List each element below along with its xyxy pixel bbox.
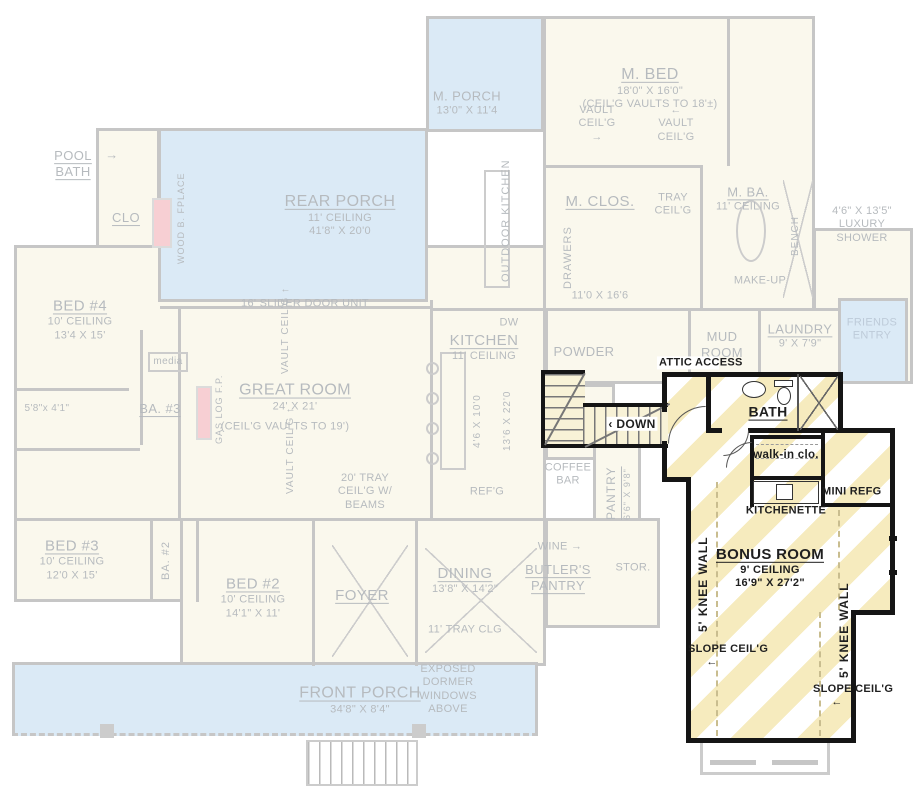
- island-stool: [426, 362, 439, 375]
- wood-fireplace: [152, 198, 172, 248]
- window-tick: [889, 570, 897, 575]
- label-make-up: MAKE-UP: [734, 274, 786, 287]
- shower-x-pattern: [800, 376, 838, 430]
- label-down: ‹ DOWN: [606, 417, 657, 431]
- label-drawers: DRAWERS: [562, 225, 574, 289]
- label-foyer: FOYER: [335, 587, 389, 605]
- wall-segment: [312, 518, 315, 666]
- shower-partition: [797, 374, 799, 431]
- suite-wall: [662, 372, 667, 412]
- label-laundry: LAUNDRY 9' X 7'9": [768, 321, 833, 350]
- wall-segment: [14, 518, 180, 521]
- closet-shelf-dash: [756, 444, 818, 445]
- label-outdoor-kitchen: OUTDOOR KITCHEN: [500, 172, 512, 282]
- pool-bath-arrow: →: [105, 147, 118, 163]
- porch-post: [412, 724, 426, 738]
- island-stool: [426, 452, 439, 465]
- dormer-bump: [700, 743, 830, 775]
- label-dormer-note: EXPOSED DORMER WINDOWS ABOVE: [410, 663, 486, 717]
- label-mini-refg: MINI REFG: [822, 485, 864, 498]
- label-bed3: BED #3 10' CEILING 12'0 X 15': [40, 537, 105, 582]
- arrow-right-icon: →: [105, 147, 118, 162]
- label-tray-beams: 20' TRAY CEIL'G W/ BEAMS: [321, 472, 409, 512]
- kitchenette-sink: [776, 484, 793, 500]
- arrow-left-icon: ←: [670, 104, 681, 116]
- island-stool: [426, 422, 439, 435]
- label-m-porch: M. PORCH 13'0" X 11'4: [433, 88, 501, 117]
- label-coffee-bar: COFFEE BAR: [542, 462, 594, 489]
- label-ba2: BA. #2: [160, 528, 172, 580]
- label-walk-in-clo: walk-in clo.: [753, 449, 819, 463]
- master-suite-block: [543, 16, 815, 312]
- label-pantry-dims: 6'6" X 9'8": [622, 458, 632, 520]
- wood-fireplace-label: WOOD B. FPLACE: [176, 192, 186, 264]
- label-vault-ceilg-great: VAULT CEIL'G ↑: [280, 322, 291, 374]
- bath-sink: [742, 381, 766, 398]
- wall-segment: [545, 165, 703, 168]
- label-rear-porch: REAR PORCH 11' CEILING 41'8" X 20'0: [285, 192, 396, 238]
- arrow-right-icon: →: [591, 131, 602, 143]
- label-powder: POWDER: [554, 344, 615, 360]
- wall-segment: [14, 388, 129, 391]
- label-refg: REF'G: [470, 485, 504, 498]
- label-vault-ceilg: VAULT CEIL'G →: [576, 104, 618, 144]
- label-bath: BATH: [748, 404, 787, 421]
- wall-segment: [700, 165, 703, 310]
- wall-segment: [415, 518, 418, 666]
- knee-wall-dash-left: [716, 482, 718, 736]
- arrow-up-icon: ↑: [285, 407, 296, 413]
- arrow-right-icon: →: [571, 540, 582, 552]
- label-bench: BENCH: [790, 210, 801, 256]
- label-pantry: PANTRY: [604, 458, 618, 520]
- label-media: media: [153, 356, 182, 368]
- label-slope-ceilg-right: SLOPE CEIL'G ←: [813, 683, 861, 709]
- arrow-up-icon: ↑: [280, 287, 291, 293]
- wall-segment: [196, 518, 199, 602]
- label-knee-wall-right: 5' KNEE WALL: [837, 598, 851, 678]
- label-dw: DW: [500, 316, 519, 329]
- label-attic-access: ATTIC ACCESS: [657, 356, 719, 369]
- label-bed4: BED #4 10' CEILING 13'4 X 15': [48, 297, 113, 342]
- porch-post: [100, 724, 114, 738]
- wall-segment: [430, 308, 546, 311]
- dining-tray-pattern: [425, 548, 537, 653]
- label-slope-ceilg-left: SLOPE CEIL'G ←: [688, 643, 736, 669]
- label-ba3-dims: 5'8"x 4'1": [25, 403, 70, 415]
- label-wine: WINE →: [538, 540, 583, 553]
- label-ba3: BA. #3: [139, 401, 180, 417]
- label-dining: DINING 13'8" X 14'2": [432, 565, 498, 597]
- island-stool: [426, 392, 439, 405]
- suite-wall-step: [851, 610, 895, 615]
- label-m-clos-dims: 11'0 X 16'6: [572, 289, 629, 302]
- closet-bottom-wall: [750, 476, 825, 480]
- floor-plan-canvas: WOOD B. FPLACE GAS LOG F.P. M. PORCH 13'…: [0, 0, 918, 800]
- toilet-bowl: [777, 387, 791, 405]
- gas-fireplace-label: GAS LOG F.P.: [214, 386, 224, 444]
- label-stor: STOR.: [616, 561, 651, 574]
- toilet-tank: [774, 380, 793, 387]
- window-tick: [889, 536, 897, 541]
- suite-wall: [662, 441, 667, 482]
- nook-top-wall: [838, 428, 895, 433]
- label-luxury-shower: 4'6" X 13'5" LUXURY SHOWER: [818, 205, 906, 245]
- suite-wall-bottom: [686, 738, 856, 743]
- label-m-clos: M. CLOS.: [565, 193, 634, 211]
- closet-top-wall: [753, 435, 825, 439]
- arrow-left-icon: ←: [706, 656, 717, 668]
- label-m-ba: M. BA. 11' CEILING: [716, 184, 780, 213]
- label-bed2: BED #2 10' CEILING 14'1" X 11': [221, 575, 286, 620]
- dormer-sill: [710, 760, 756, 765]
- label-butlers-pantry: BUTLER'S PANTRY: [522, 562, 594, 594]
- label-tray-ceilg: TRAY CEIL'G: [650, 192, 696, 219]
- wall-segment: [150, 518, 153, 602]
- label-slider-door: 16' SLIDER DOOR UNIT: [241, 297, 369, 310]
- suite-wall-right-upper: [890, 428, 895, 615]
- label-bonus-room: BONUS ROOM 9' CEILING 16'9" X 27'2": [716, 546, 824, 590]
- label-kitchen-dims: 13'6 X 22'0: [502, 385, 513, 451]
- suite-wall-right-lower: [851, 610, 856, 743]
- bath-bottom-wall: [706, 428, 722, 433]
- label-island-dims: 4'6 X 10'0: [472, 388, 483, 448]
- label-front-porch: FRONT PORCH 34'8" X 8'4": [299, 684, 420, 717]
- knee-wall-dash-right: [819, 612, 821, 736]
- wall-segment: [430, 300, 433, 520]
- label-vault-ceilg-great2: VAULT CEIL'G ↑: [285, 438, 296, 494]
- suite-wall-left: [686, 477, 691, 743]
- label-vault-ceilg: ← VAULT CEIL'G: [655, 104, 697, 144]
- label-knee-wall-left: 5' KNEE WALL: [696, 552, 710, 632]
- label-kitchenette: KITCHENETTE: [746, 504, 826, 517]
- label-pool-bath: POOL BATH: [46, 148, 100, 180]
- wall-segment: [14, 448, 140, 451]
- wall-segment: [727, 16, 730, 166]
- label-clo: CLO: [112, 210, 140, 226]
- kitchenette-bottom-wall: [821, 503, 895, 507]
- gas-fireplace: [196, 386, 212, 440]
- bath-left-wall: [706, 372, 711, 433]
- label-dining-note: 11' TRAY CLG: [428, 623, 502, 636]
- bath-right-wall: [838, 372, 843, 433]
- front-steps: [306, 740, 418, 786]
- kitchen-island: [440, 352, 466, 470]
- label-kitchen: KITCHEN 11' CEILING: [450, 332, 519, 364]
- dormer-sill: [772, 760, 818, 765]
- label-friends-entry: FRIENDS ENTRY: [843, 317, 901, 344]
- arrow-left-icon: ←: [831, 696, 842, 708]
- chevron-left-icon: ‹: [608, 417, 612, 431]
- wall-segment: [140, 330, 143, 445]
